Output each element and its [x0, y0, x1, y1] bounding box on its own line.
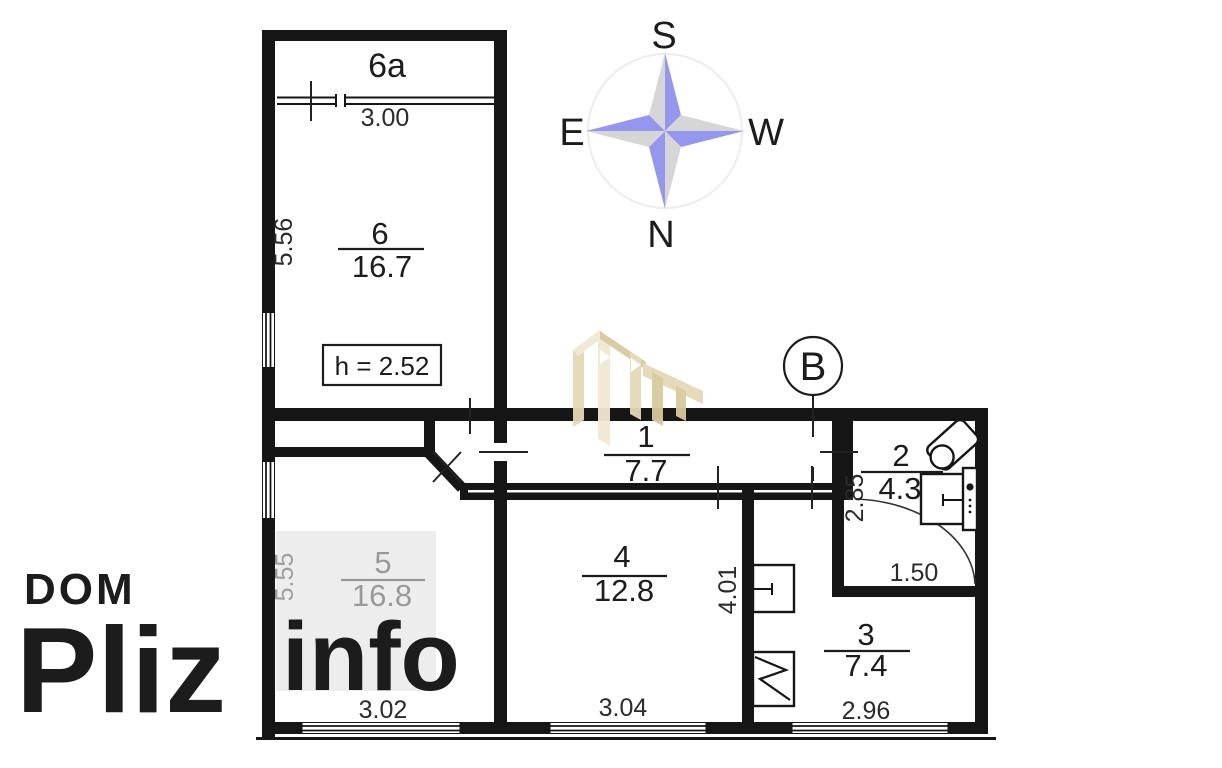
dim-room6-depth: 5.56 — [270, 218, 298, 267]
dim-room2-depth: 2.85 — [841, 474, 869, 523]
room3-area: 7.4 — [844, 648, 887, 683]
dim-room2-width: 1.50 — [890, 559, 939, 587]
wall-main-top-band — [262, 408, 988, 421]
ceiling-height-text: h = 2.52 — [335, 351, 430, 381]
compass-label-north: N — [647, 214, 674, 256]
wall-balcony-top — [262, 30, 507, 41]
room1-number: 1 — [637, 419, 654, 454]
wall-hall-bottom-seam — [468, 490, 845, 493]
floor-plan-drawing: DOM Pliz — [0, 0, 1222, 768]
balcony-number: 6a — [368, 47, 406, 85]
room3-number: 3 — [857, 617, 874, 652]
dim-room4-depth: 4.01 — [714, 566, 742, 615]
room4-bottom-window — [548, 722, 708, 734]
ceiling-height-box: h = 2.52 — [323, 345, 441, 385]
room2-area: 4.3 — [878, 471, 921, 506]
room6-number: 6 — [371, 216, 388, 251]
room1-area: 7.7 — [624, 453, 667, 488]
bath-sink-icon — [921, 468, 977, 530]
room5-left-window — [262, 460, 275, 521]
wall-room6-right — [494, 30, 507, 421]
dim-room4-width: 3.04 — [599, 694, 648, 722]
kitchen-sink-icon — [753, 565, 794, 612]
wall-outer-right — [975, 408, 988, 734]
wall-room5-top — [262, 447, 429, 457]
watermark-info-text: info — [282, 602, 460, 711]
compass-label-south: S — [651, 15, 676, 57]
compass-label-west: W — [748, 112, 784, 154]
wall-bath-bottom — [832, 586, 988, 597]
room4-area: 12.8 — [594, 573, 654, 608]
dim-room3-width: 2.96 — [842, 697, 891, 725]
floor-plan-page: DOM Pliz — [0, 0, 1222, 768]
wall-room5-room4-divider — [494, 483, 507, 733]
room2-number: 2 — [892, 438, 909, 473]
wall-outer-left — [262, 30, 275, 740]
room4-number: 4 — [613, 539, 630, 574]
section-marker-label: B — [800, 345, 827, 389]
wall-outer-bottom-face — [256, 737, 996, 740]
room6-area: 16.7 — [352, 249, 412, 284]
room6-left-window — [262, 311, 275, 370]
watermark-pliz-text: Pliz — [16, 602, 226, 738]
kitchen-stove-icon — [753, 652, 794, 706]
compass-label-east: E — [559, 112, 584, 154]
dim-balcony-window: 3.00 — [361, 104, 410, 132]
